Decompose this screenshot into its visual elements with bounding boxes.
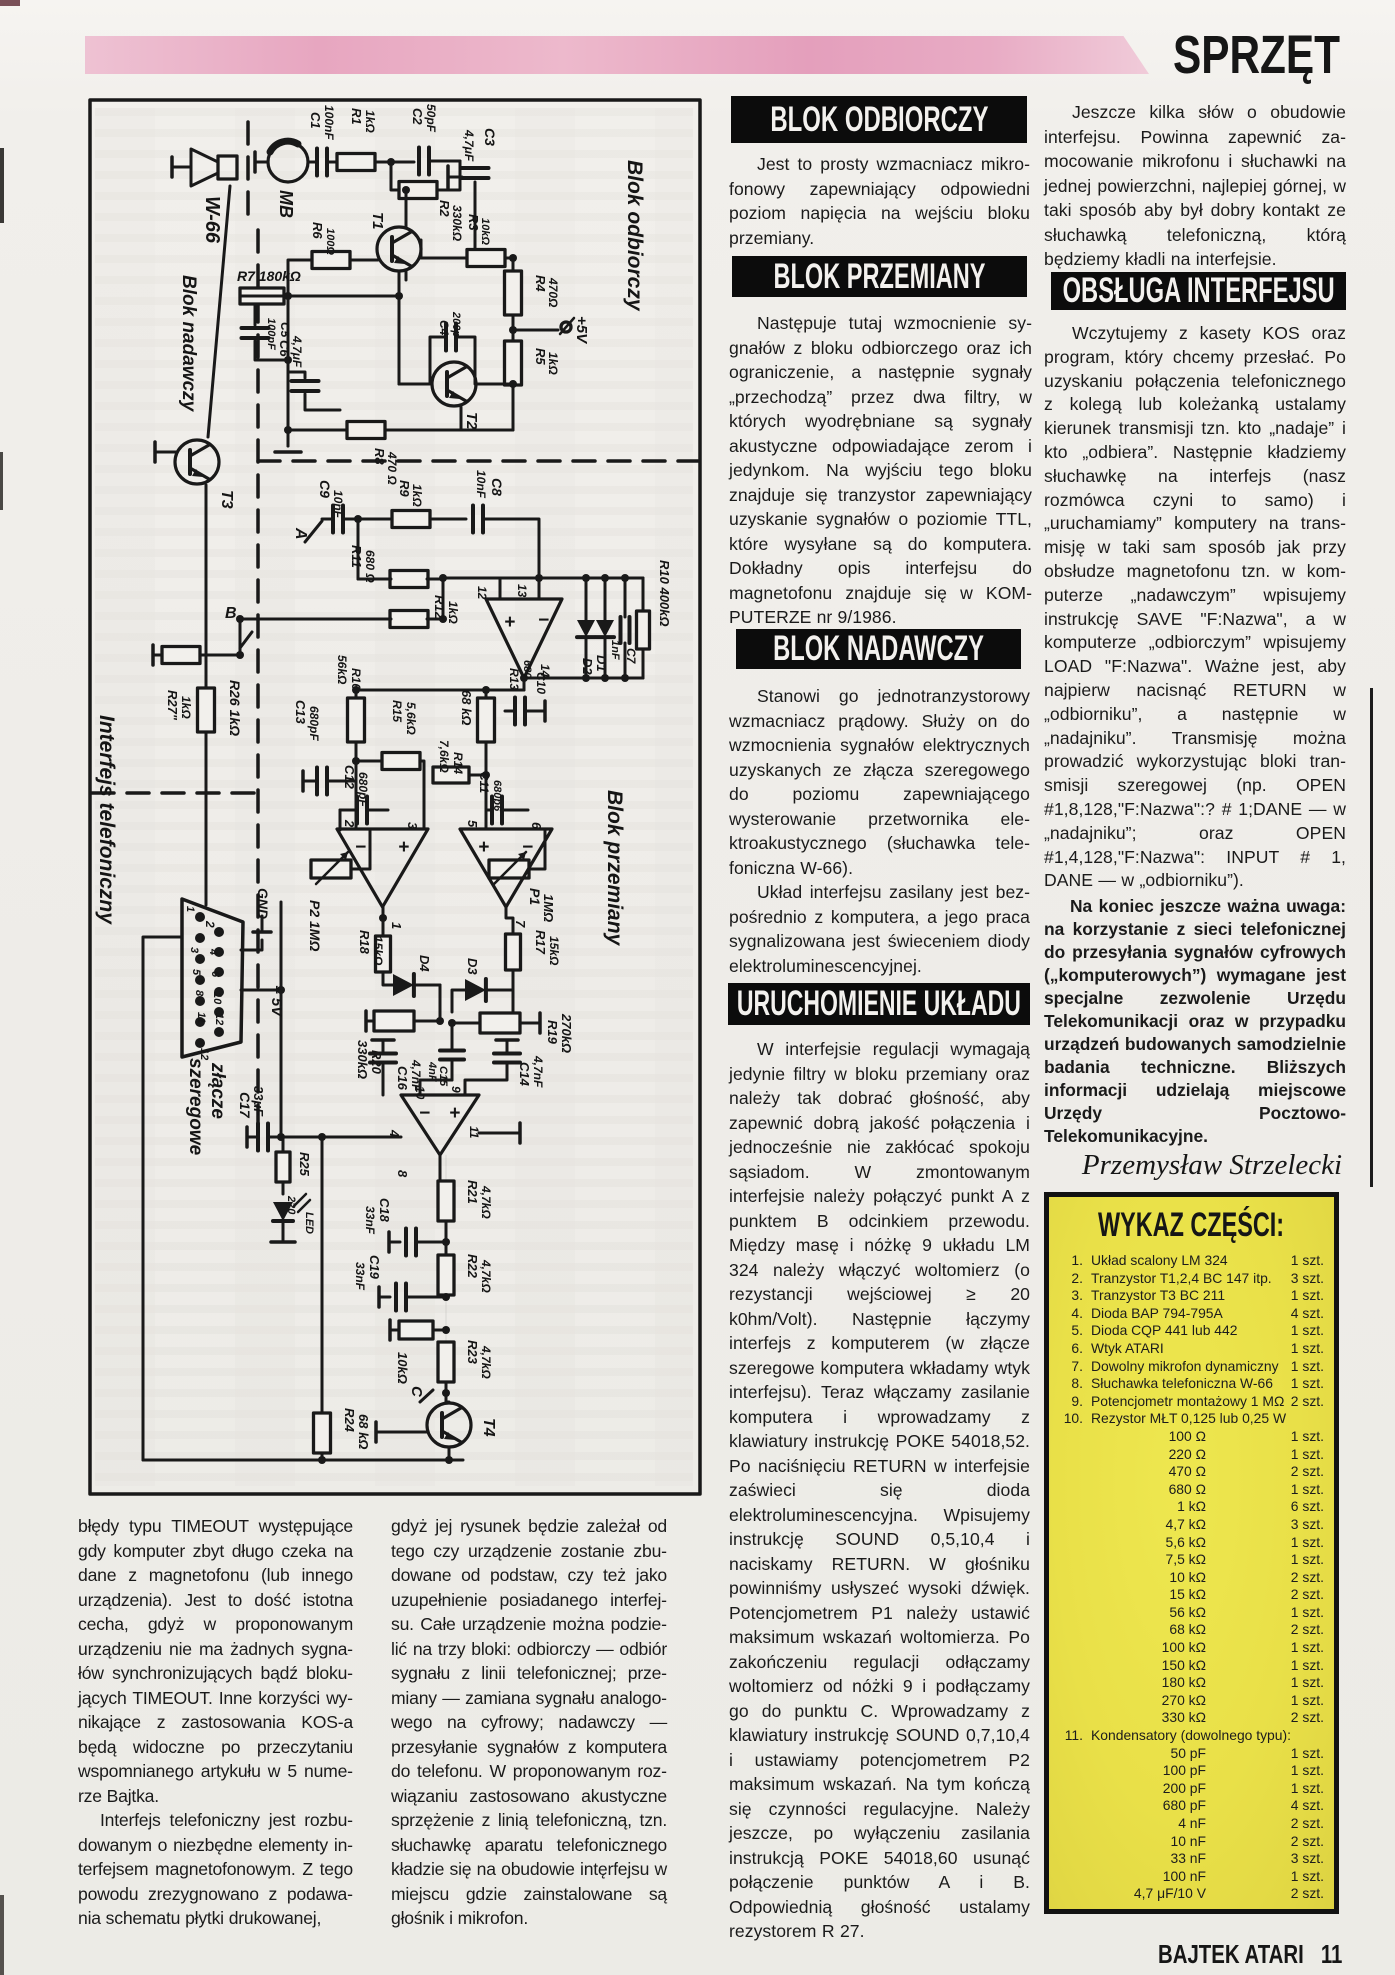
svg-text:10kΩ: 10kΩ xyxy=(479,218,491,245)
svg-text:33μF: 33μF xyxy=(251,1086,266,1117)
svg-text:C8: C8 xyxy=(489,478,505,496)
svg-text:C: C xyxy=(408,1386,425,1398)
svg-text:1kΩ: 1kΩ xyxy=(410,484,424,507)
svg-text:R6: R6 xyxy=(310,222,325,239)
svg-text:10nF: 10nF xyxy=(474,470,488,499)
svg-text:−: − xyxy=(355,837,366,858)
svg-text:Blok przemiany: Blok przemiany xyxy=(603,790,626,947)
svg-text:13: 13 xyxy=(515,584,529,598)
svg-text:12: 12 xyxy=(475,586,489,600)
svg-text:100nF: 100nF xyxy=(322,105,336,140)
svg-text:68 kΩ: 68 kΩ xyxy=(356,1414,371,1449)
svg-text:R14: R14 xyxy=(451,752,465,774)
svg-text:15kΩ: 15kΩ xyxy=(547,936,561,966)
svg-text:R5: R5 xyxy=(533,348,548,365)
svg-text:R26 1kΩ: R26 1kΩ xyxy=(227,680,243,736)
svg-text:10: 10 xyxy=(413,1086,427,1100)
svg-text:68 kΩ: 68 kΩ xyxy=(459,690,474,725)
svg-text:D2: D2 xyxy=(580,658,595,675)
svg-text:100pF: 100pF xyxy=(265,318,277,350)
svg-text:5,6kΩ: 5,6kΩ xyxy=(404,702,418,735)
svg-text:T4: T4 xyxy=(480,1418,497,1437)
svg-text:680pF: 680pF xyxy=(307,706,321,741)
svg-text:4,7kΩ: 4,7kΩ xyxy=(479,1185,493,1219)
svg-text:C14: C14 xyxy=(517,1062,532,1087)
svg-text:R15: R15 xyxy=(390,700,404,722)
svg-text:R13: R13 xyxy=(507,668,521,690)
svg-text:1kΩ: 1kΩ xyxy=(446,601,460,624)
svg-text:10nF: 10nF xyxy=(331,490,345,519)
svg-text:4,7nF: 4,7nF xyxy=(531,1055,545,1088)
svg-text:100Ω: 100Ω xyxy=(324,228,336,255)
svg-text:+: + xyxy=(478,837,489,858)
svg-text:R25: R25 xyxy=(297,1152,312,1177)
svg-text:R1: R1 xyxy=(349,108,364,125)
svg-text:1MΩ: 1MΩ xyxy=(541,894,556,922)
svg-text:15kΩ: 15kΩ xyxy=(371,936,385,966)
svg-text:10kΩ: 10kΩ xyxy=(395,1352,410,1384)
svg-text:R24: R24 xyxy=(342,1408,357,1433)
svg-text:R3: R3 xyxy=(466,214,481,231)
svg-text:W-66: W-66 xyxy=(201,196,223,244)
svg-text:MB: MB xyxy=(276,190,296,218)
svg-text:C4: C4 xyxy=(437,320,451,336)
svg-text:+5V: +5V xyxy=(573,316,590,345)
svg-text:R9: R9 xyxy=(397,480,412,497)
svg-text:B: B xyxy=(225,605,237,622)
svg-text:R19: R19 xyxy=(545,1020,560,1045)
svg-text:2: 2 xyxy=(342,819,357,828)
svg-text:+: + xyxy=(504,612,515,633)
svg-text:680pF: 680pF xyxy=(356,772,370,807)
svg-text:1: 1 xyxy=(389,922,404,929)
svg-text:R23: R23 xyxy=(465,1340,480,1365)
svg-text:680: 680 xyxy=(521,660,533,679)
svg-text:C3: C3 xyxy=(482,128,498,146)
svg-text:4,7kΩ: 4,7kΩ xyxy=(479,1259,493,1293)
svg-text:R21: R21 xyxy=(465,1180,480,1204)
svg-text:−: − xyxy=(522,837,533,858)
svg-text:4,7μF: 4,7μF xyxy=(462,129,476,162)
svg-text:1kΩ: 1kΩ xyxy=(179,696,193,719)
svg-text:R18: R18 xyxy=(357,930,372,955)
svg-text:A: A xyxy=(292,527,309,540)
svg-text:R22: R22 xyxy=(465,1254,480,1279)
svg-text:+: + xyxy=(398,837,409,858)
svg-text:50pF: 50pF xyxy=(424,104,438,133)
svg-text:+: + xyxy=(449,1103,460,1124)
svg-text:Blok odbiorczy: Blok odbiorczy xyxy=(623,160,646,312)
svg-text:3: 3 xyxy=(188,947,200,953)
svg-text:D3: D3 xyxy=(465,958,480,975)
svg-text:10: 10 xyxy=(211,992,223,1005)
svg-text:C5: C5 xyxy=(278,322,292,338)
svg-text:T2: T2 xyxy=(463,412,480,430)
svg-text:złącze: złącze xyxy=(207,1062,228,1119)
svg-text:470 Ω: 470 Ω xyxy=(385,451,399,485)
svg-text:5: 5 xyxy=(465,820,480,828)
svg-text:R12: R12 xyxy=(432,595,447,620)
svg-text:C12: C12 xyxy=(342,765,357,790)
svg-text:270kΩ: 270kΩ xyxy=(559,1013,574,1053)
svg-text:680 Ω: 680 Ω xyxy=(363,550,377,583)
svg-text:12: 12 xyxy=(213,1013,225,1025)
svg-text:8: 8 xyxy=(193,990,205,997)
svg-text:1kΩ: 1kΩ xyxy=(363,110,377,133)
svg-text:9: 9 xyxy=(449,1086,463,1093)
svg-text:6: 6 xyxy=(529,822,544,830)
svg-text:56kΩ: 56kΩ xyxy=(335,655,349,685)
svg-text:R8: R8 xyxy=(372,448,387,465)
svg-text:330kΩ: 330kΩ xyxy=(355,1040,370,1079)
svg-text:7: 7 xyxy=(513,920,528,928)
svg-text:C1: C1 xyxy=(308,112,323,129)
svg-text:7,6kΩ: 7,6kΩ xyxy=(437,740,451,773)
svg-text:+ 5V: + 5V xyxy=(268,985,285,1018)
svg-text:C11: C11 xyxy=(477,772,491,793)
svg-text:3: 3 xyxy=(405,822,420,830)
svg-text:C16: C16 xyxy=(395,1066,410,1091)
svg-text:5: 5 xyxy=(190,969,202,976)
svg-text:C10: C10 xyxy=(534,672,548,694)
svg-text:−: − xyxy=(419,1103,430,1124)
svg-text:R2: R2 xyxy=(437,200,452,217)
svg-text:2: 2 xyxy=(203,920,217,928)
svg-text:200p: 200p xyxy=(450,311,462,337)
svg-text:1: 1 xyxy=(184,906,196,912)
svg-text:1kΩ: 1kΩ xyxy=(546,352,560,375)
svg-text:C6: C6 xyxy=(277,340,292,357)
svg-text:R11: R11 xyxy=(349,545,364,568)
svg-text:C18: C18 xyxy=(377,1198,392,1223)
svg-text:4,7μF: 4,7μF xyxy=(290,335,304,368)
svg-text:Interfejs telefoniczny: Interfejs telefoniczny xyxy=(95,715,118,925)
svg-text:4: 4 xyxy=(207,948,219,955)
svg-text:P1: P1 xyxy=(527,888,543,905)
svg-text:680p6: 680p6 xyxy=(491,780,503,812)
svg-text:C9: C9 xyxy=(317,480,333,498)
svg-text:470Ω: 470Ω xyxy=(546,277,560,308)
svg-text:33nF: 33nF xyxy=(353,1262,367,1291)
svg-text:Blok nadawczy: Blok nadawczy xyxy=(178,275,199,413)
svg-text:C17: C17 xyxy=(237,1092,253,1119)
svg-text:6: 6 xyxy=(209,971,221,978)
svg-text:D4: D4 xyxy=(417,955,432,972)
svg-text:−: − xyxy=(538,610,549,631)
svg-text:C2: C2 xyxy=(410,108,425,125)
svg-text:4,7kΩ: 4,7kΩ xyxy=(479,1345,493,1379)
svg-text:R27": R27" xyxy=(165,690,180,721)
svg-text:R10 400kΩ: R10 400kΩ xyxy=(657,560,672,627)
svg-text:T1: T1 xyxy=(369,212,386,230)
svg-text:C19: C19 xyxy=(367,1255,382,1280)
svg-text:R4: R4 xyxy=(533,275,548,292)
svg-text:T3: T3 xyxy=(218,490,235,509)
svg-text:11: 11 xyxy=(195,1012,207,1023)
svg-text:LED: LED xyxy=(303,1212,315,1234)
svg-text:33nF: 33nF xyxy=(363,1206,377,1235)
svg-text:D1: D1 xyxy=(594,655,609,672)
svg-text:P2 1MΩ: P2 1MΩ xyxy=(307,900,323,951)
svg-text:8: 8 xyxy=(395,1170,410,1178)
svg-text:C13: C13 xyxy=(293,700,308,725)
svg-text:R17: R17 xyxy=(533,930,548,955)
svg-text:szeregowe: szeregowe xyxy=(185,1058,206,1156)
svg-text:1nF: 1nF xyxy=(609,640,621,660)
svg-text:GND: GND xyxy=(255,888,271,919)
svg-text:R7 180kΩ: R7 180kΩ xyxy=(237,268,301,284)
svg-text:330kΩ: 330kΩ xyxy=(450,205,464,242)
